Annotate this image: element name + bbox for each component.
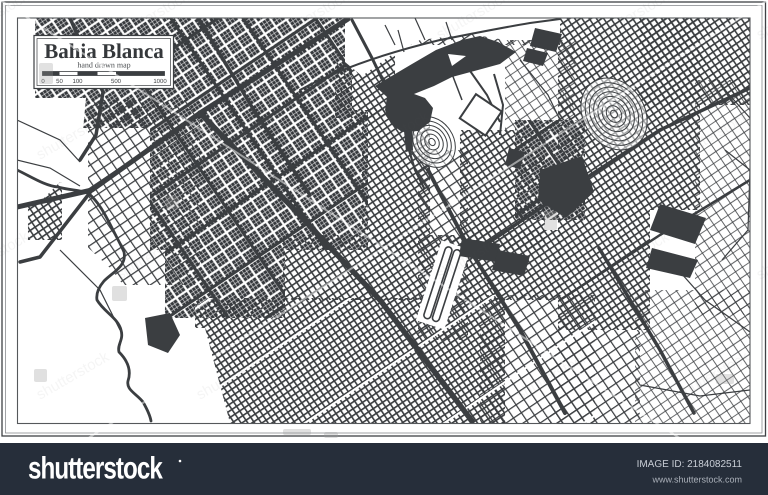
svg-text:IMAGE ID: 2184082511: IMAGE ID: 2184082511 [637,459,743,470]
svg-text:50: 50 [56,78,63,85]
svg-text:500: 500 [111,78,122,85]
svg-text:100: 100 [72,78,83,85]
svg-text:Bahia Blanca: Bahia Blanca [44,39,164,63]
svg-text:www.shutterstock.com: www.shutterstock.com [651,475,742,485]
svg-text:shutterstock: shutterstock [28,451,163,486]
svg-text:1000: 1000 [153,78,167,85]
